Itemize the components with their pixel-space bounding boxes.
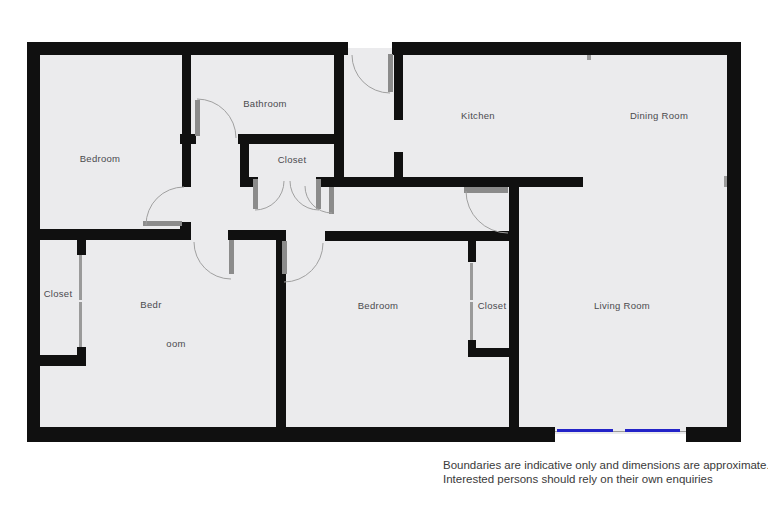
door-swing-arc — [466, 191, 508, 233]
room-label-bedroom-2: Bedroom — [358, 300, 399, 311]
disclaimer-line-1: Boundaries are indicative only and dimen… — [443, 458, 768, 472]
room-label-dining-room: Dining Room — [630, 110, 688, 121]
disclaimer-text: Boundaries are indicative only and dimen… — [443, 458, 768, 486]
door-swing-arc — [284, 243, 323, 282]
door-swing-arc — [194, 242, 231, 279]
room-label-bedroom-1: Bedroom — [80, 153, 121, 164]
door-swing-arc — [255, 181, 284, 210]
floor-plan: BedroomBathroomClosetKitchenDining RoomC… — [0, 0, 768, 512]
room-label-closet-2: Closet — [478, 300, 507, 311]
room-label-living-room: Living Room — [594, 300, 650, 311]
room-label-bedroom-3-part-1: Bedr — [140, 299, 161, 310]
door-swing-arc — [352, 55, 390, 93]
door-swing-arcs — [0, 0, 768, 512]
room-label-closet-left: Closet — [44, 288, 73, 299]
door-swing-arc — [146, 187, 184, 225]
room-label-bathroom: Bathroom — [243, 98, 287, 109]
room-label-kitchen: Kitchen — [461, 110, 495, 121]
door-swing-arc — [305, 186, 332, 213]
room-label-bedroom-3-part-2: oom — [166, 338, 185, 349]
disclaimer-line-2: Interested persons should rely on their … — [443, 472, 768, 486]
room-label-closet-hall: Closet — [278, 154, 307, 165]
door-swing-arc — [197, 99, 236, 138]
door-swing-arc — [290, 181, 319, 210]
